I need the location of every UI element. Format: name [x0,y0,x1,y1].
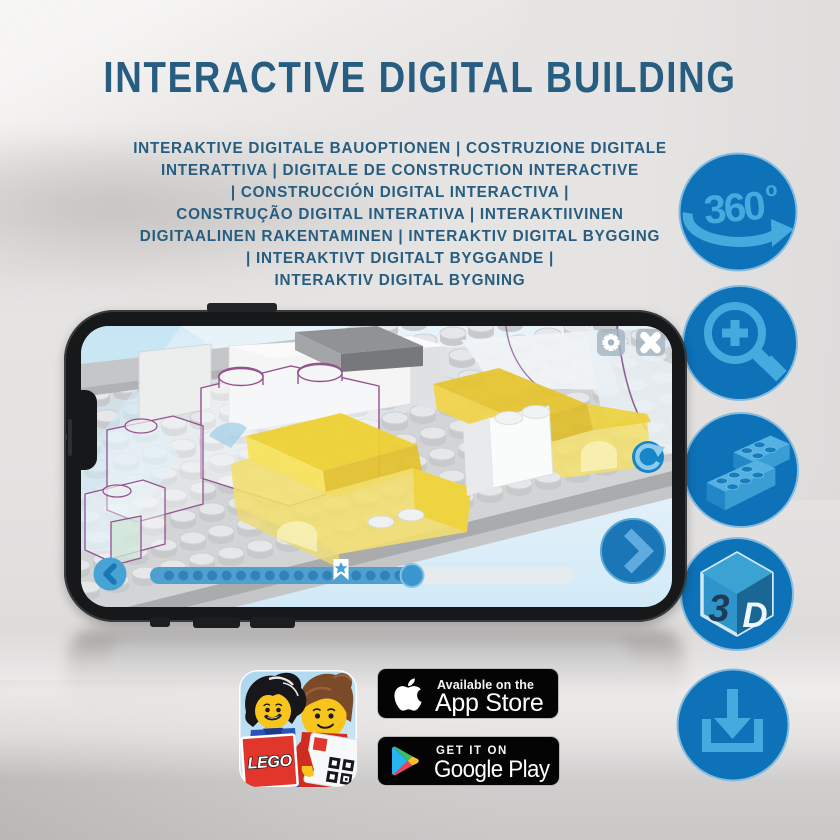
svg-text:D: D [742,596,767,635]
svg-text:LEGO: LEGO [247,753,293,773]
svg-text:360: 360 [702,184,766,233]
svg-text:3: 3 [708,588,729,630]
svg-text:o: o [764,179,778,202]
